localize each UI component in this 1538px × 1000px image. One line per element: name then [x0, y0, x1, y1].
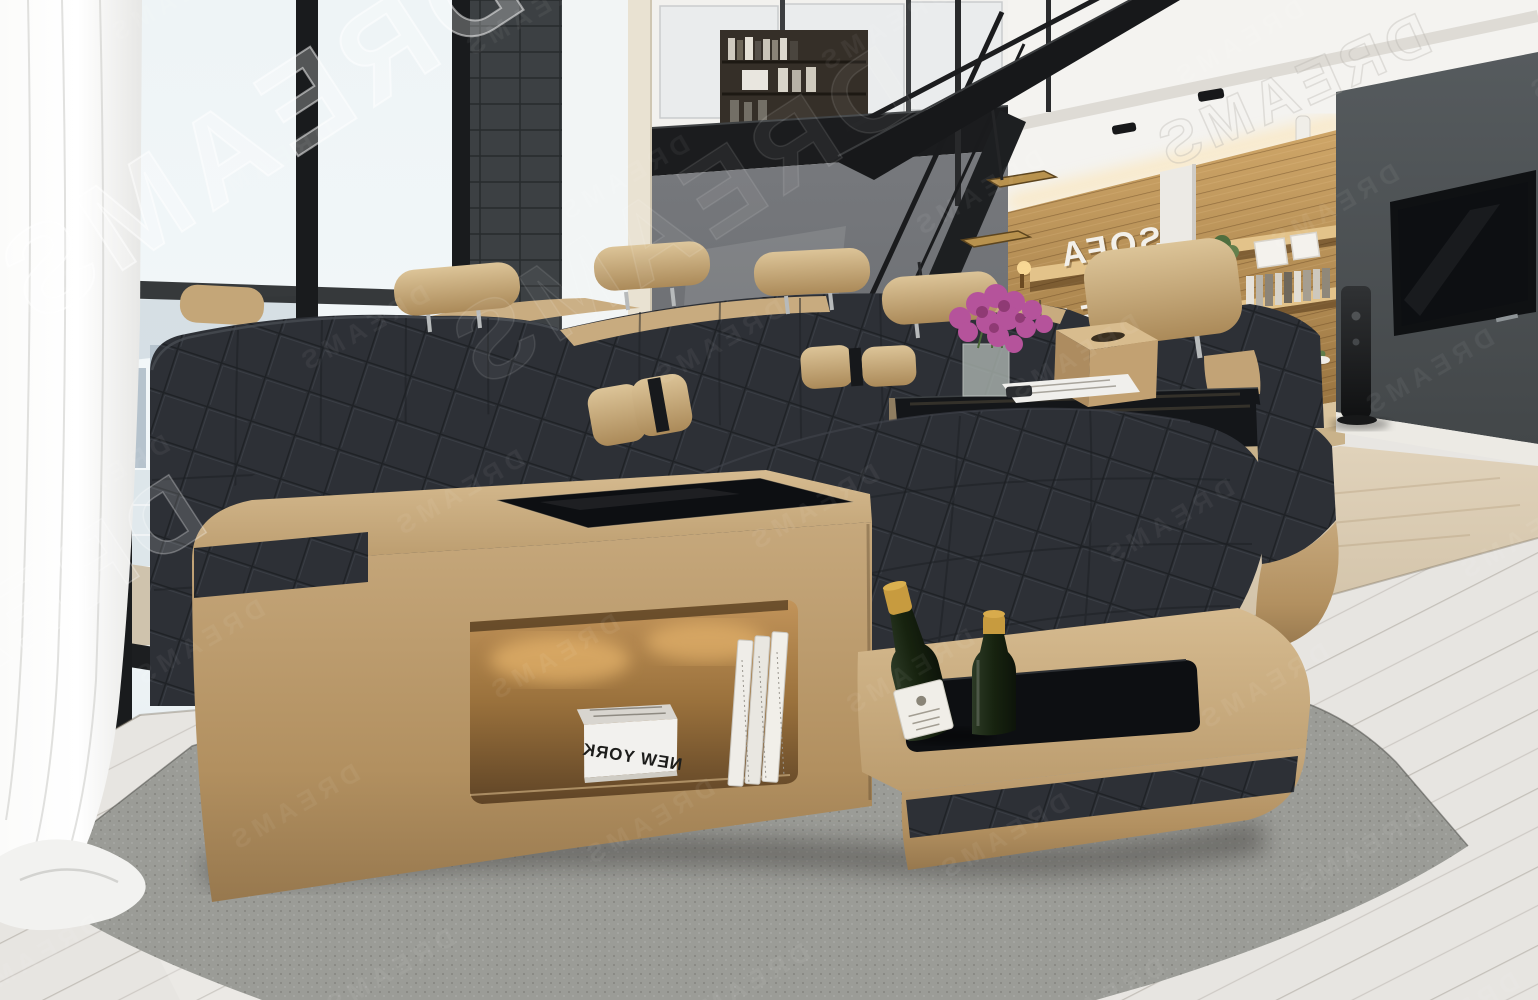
scene-canvas: DREAMS — [0, 0, 1538, 1000]
watermarks: DREAMS DREAMS DREAMS DREAMS — [0, 0, 1538, 1000]
living-room-photo: DREAMS — [0, 0, 1538, 1000]
